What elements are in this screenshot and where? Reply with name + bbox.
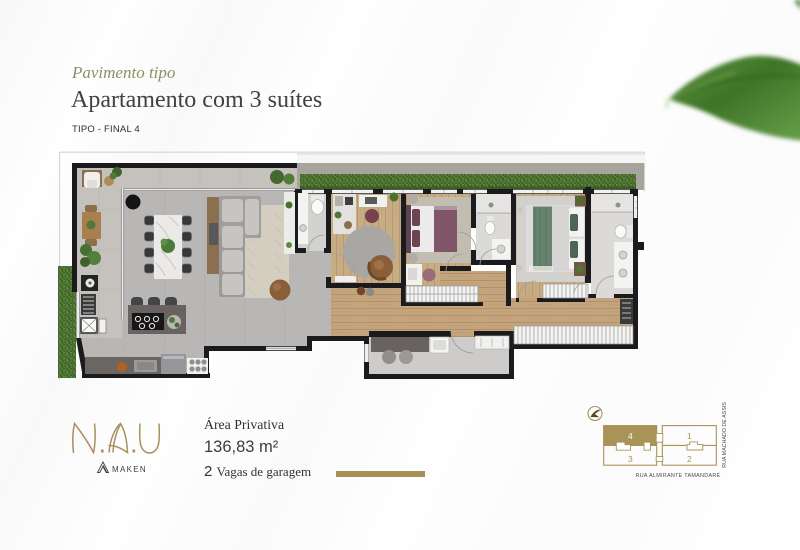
svg-text:MAKEN: MAKEN bbox=[112, 465, 147, 474]
